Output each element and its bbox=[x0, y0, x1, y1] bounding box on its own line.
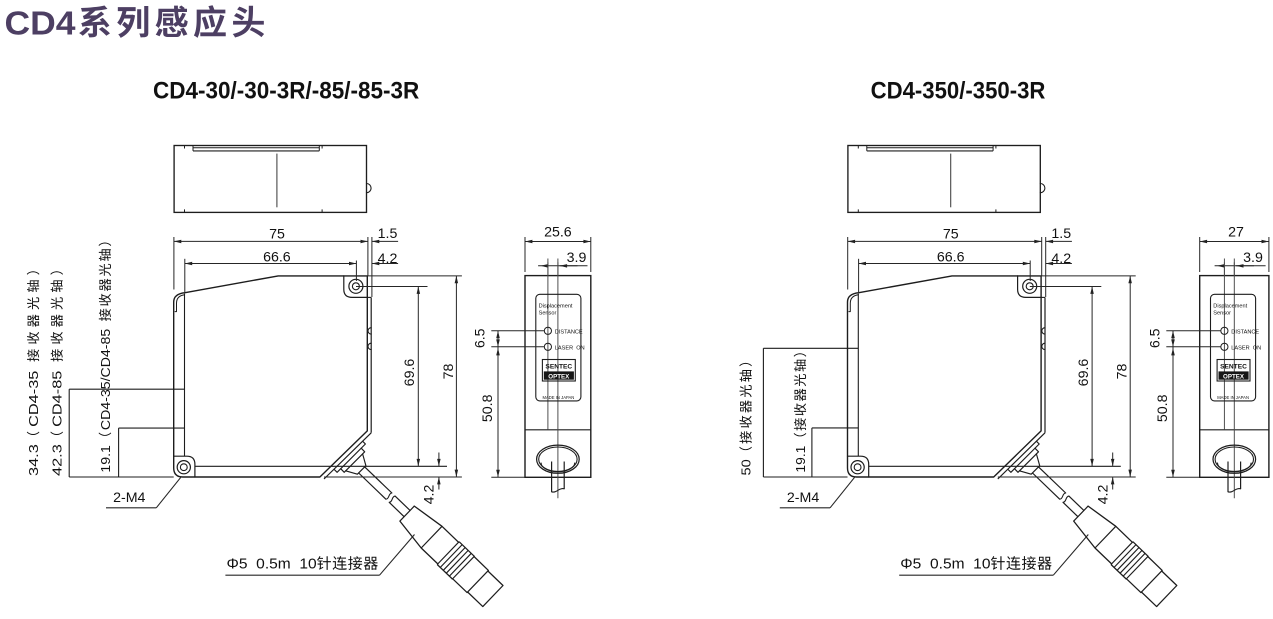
svg-text:4.2: 4.2 bbox=[422, 485, 438, 505]
svg-text:Displacement: Displacement bbox=[1213, 304, 1247, 310]
svg-text:3.9: 3.9 bbox=[567, 250, 587, 266]
svg-text:75: 75 bbox=[943, 227, 959, 243]
svg-text:0.5m: 0.5m bbox=[930, 556, 965, 573]
svg-text:42.3: 42.3 bbox=[50, 444, 65, 476]
svg-text:78: 78 bbox=[1115, 364, 1131, 380]
svg-text:CD4-85: CD4-85 bbox=[50, 371, 65, 427]
svg-text:LASER ON: LASER ON bbox=[1231, 345, 1261, 351]
svg-text:MADE IN JAPAN: MADE IN JAPAN bbox=[542, 395, 574, 400]
svg-text:DISTANCE: DISTANCE bbox=[1231, 329, 1259, 335]
svg-text:DISTANCE: DISTANCE bbox=[555, 329, 583, 335]
svg-text:1.5: 1.5 bbox=[1051, 226, 1071, 242]
svg-text:50: 50 bbox=[739, 459, 754, 475]
svg-text:66.6: 66.6 bbox=[263, 249, 291, 265]
svg-text:19.1: 19.1 bbox=[98, 445, 113, 473]
svg-text:10: 10 bbox=[299, 556, 316, 573]
svg-text:6.5: 6.5 bbox=[1148, 328, 1164, 348]
svg-text:SENTEC: SENTEC bbox=[1220, 364, 1247, 371]
svg-text:6.5: 6.5 bbox=[472, 328, 488, 348]
svg-text:LASER ON: LASER ON bbox=[555, 345, 585, 351]
svg-text:2-M4: 2-M4 bbox=[113, 490, 145, 506]
svg-text:0.5m: 0.5m bbox=[256, 556, 291, 573]
svg-text:3.9: 3.9 bbox=[1243, 250, 1263, 266]
svg-text:CD4-35: CD4-35 bbox=[26, 371, 41, 427]
svg-text:78: 78 bbox=[441, 364, 457, 380]
svg-text:MADE IN JAPAN: MADE IN JAPAN bbox=[1217, 395, 1249, 400]
svg-text:OPTEX: OPTEX bbox=[548, 373, 570, 380]
svg-text:SENTEC: SENTEC bbox=[545, 364, 572, 371]
svg-text:19.1: 19.1 bbox=[793, 446, 808, 473]
svg-text:CD4-35/CD4-85: CD4-35/CD4-85 bbox=[98, 329, 113, 430]
svg-text:CD4: CD4 bbox=[5, 6, 76, 43]
svg-text:69.6: 69.6 bbox=[1076, 359, 1092, 387]
svg-text:Sensor: Sensor bbox=[1213, 311, 1231, 317]
svg-text:CD4-350/-350-3R: CD4-350/-350-3R bbox=[871, 78, 1046, 105]
svg-text:CD4-30/-30-3R/-85/-85-3R: CD4-30/-30-3R/-85/-85-3R bbox=[153, 78, 419, 105]
svg-text:75: 75 bbox=[269, 227, 285, 243]
svg-text:Displacement: Displacement bbox=[539, 304, 573, 310]
svg-text:Sensor: Sensor bbox=[539, 311, 557, 317]
svg-text:10: 10 bbox=[973, 556, 990, 573]
svg-text:50.8: 50.8 bbox=[480, 394, 496, 422]
svg-text:Φ5: Φ5 bbox=[227, 556, 248, 573]
svg-text:OPTEX: OPTEX bbox=[1223, 373, 1245, 380]
svg-text:4.2: 4.2 bbox=[1095, 485, 1111, 505]
svg-text:4.2: 4.2 bbox=[378, 251, 398, 267]
svg-text:2-M4: 2-M4 bbox=[787, 490, 819, 506]
svg-text:Φ5: Φ5 bbox=[900, 556, 921, 573]
svg-text:34.3: 34.3 bbox=[26, 444, 41, 476]
svg-text:66.6: 66.6 bbox=[937, 249, 965, 265]
svg-text:4.2: 4.2 bbox=[1051, 251, 1071, 267]
svg-text:27: 27 bbox=[1228, 224, 1244, 240]
svg-text:69.6: 69.6 bbox=[402, 359, 418, 387]
svg-text:1.5: 1.5 bbox=[378, 226, 398, 242]
svg-text:50.8: 50.8 bbox=[1155, 394, 1171, 422]
svg-text:25.6: 25.6 bbox=[544, 224, 572, 240]
